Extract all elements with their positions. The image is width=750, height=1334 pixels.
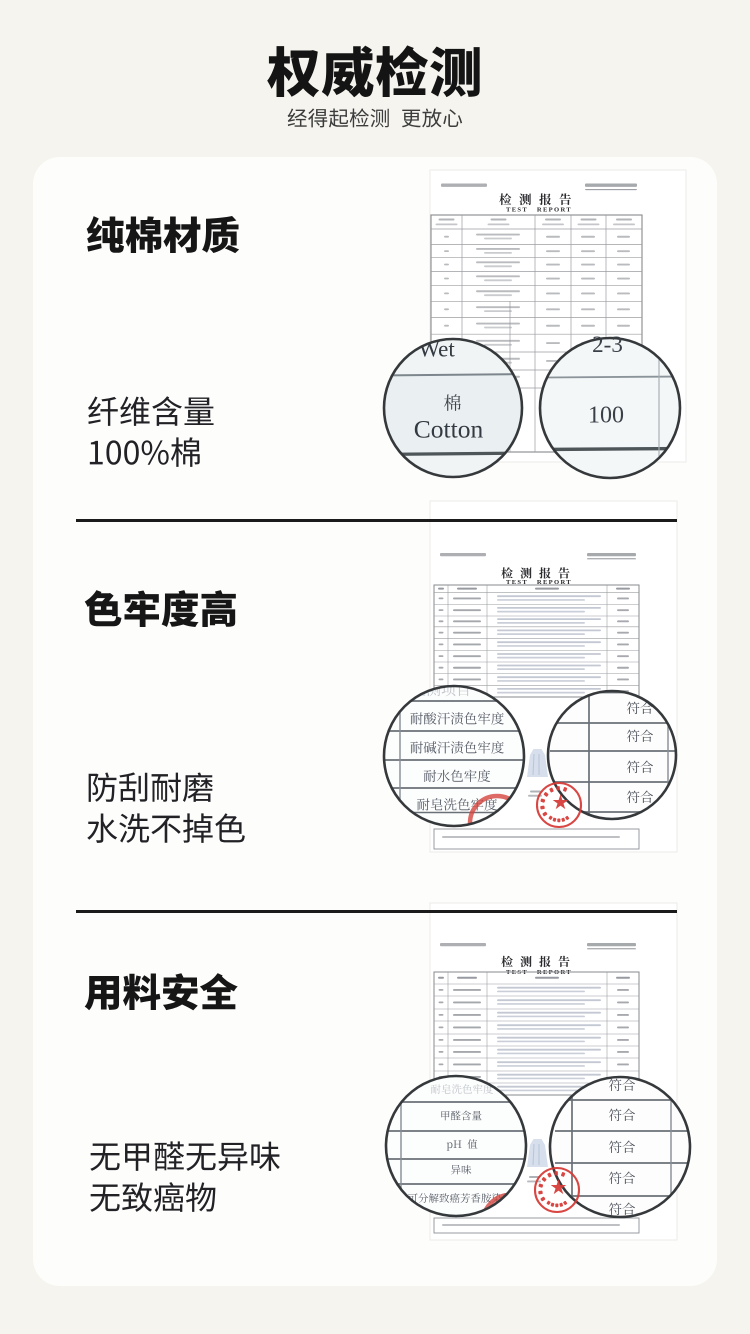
svg-text:100: 100 — [588, 403, 624, 429]
svg-text:TEST REPORT: TEST REPORT — [506, 207, 572, 214]
svg-text:Cotton: Cotton — [414, 415, 484, 444]
svg-text:2-3: 2-3 — [592, 332, 623, 357]
